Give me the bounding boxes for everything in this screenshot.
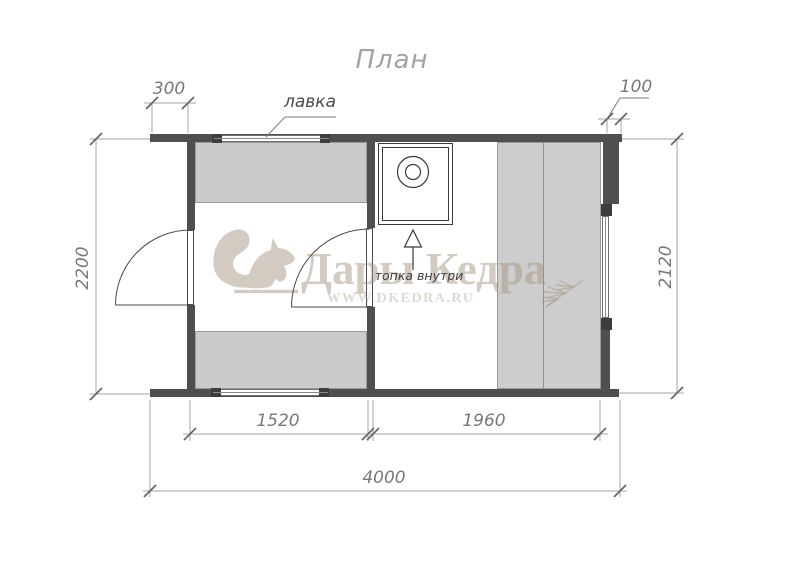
bench-label: лавка xyxy=(270,92,350,112)
dim-1520: 1520 xyxy=(238,411,318,431)
dim-2200: 2200 xyxy=(73,233,93,303)
dim-100-leader-line xyxy=(607,98,649,119)
direction-arrow-icon xyxy=(405,230,422,270)
dim-4000: 4000 xyxy=(344,468,424,488)
floor-plan-canvas: Дары Кедра WWW.DKEDRA.RU xyxy=(0,0,800,565)
dim-100: 100 xyxy=(606,77,666,97)
drawing-title: План xyxy=(332,45,452,75)
stove-label: топка внутри xyxy=(369,269,469,283)
entrance-door-arc xyxy=(116,230,191,305)
dim-2120: 2120 xyxy=(656,232,676,302)
dim-1960: 1960 xyxy=(444,411,524,431)
stove-burner-circles xyxy=(398,157,429,188)
dimension-ticks xyxy=(90,97,683,497)
dim-300: 300 xyxy=(139,79,199,99)
partition-door-arc xyxy=(292,229,370,307)
bench-leader-line xyxy=(266,117,336,137)
